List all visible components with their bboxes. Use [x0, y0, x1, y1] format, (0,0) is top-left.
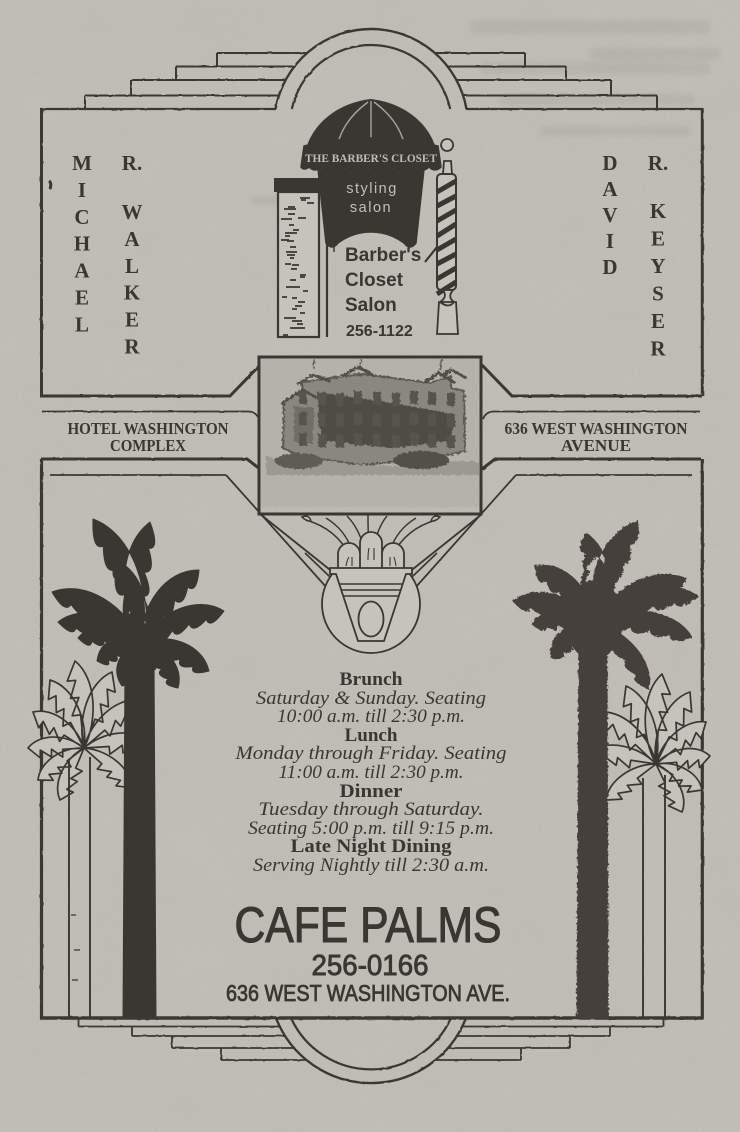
- svg-text:AVENUE: AVENUE: [561, 436, 631, 455]
- svg-text:CAFE PALMS: CAFE PALMS: [235, 897, 502, 953]
- svg-text:K: K: [650, 199, 667, 223]
- svg-text:Monday through Friday. Seating: Monday through Friday. Seating: [234, 744, 506, 764]
- svg-text:M: M: [72, 151, 92, 175]
- svg-text:I: I: [606, 229, 614, 253]
- svg-text:Brunch: Brunch: [340, 670, 404, 690]
- svg-text:W: W: [122, 200, 143, 224]
- svg-text:256-0166: 256-0166: [312, 950, 429, 982]
- svg-text:styling: styling: [346, 181, 398, 197]
- svg-text:11:00 a.m. till 2:30 p.m.: 11:00 a.m. till 2:30 p.m.: [279, 763, 464, 783]
- svg-text:H: H: [74, 232, 90, 256]
- svg-text:I: I: [78, 178, 86, 202]
- svg-text:Dinner: Dinner: [340, 782, 403, 802]
- svg-text:V: V: [602, 203, 617, 227]
- svg-text:E: E: [651, 227, 665, 251]
- svg-text:D: D: [602, 151, 617, 175]
- svg-text:Saturday & Sunday. Seating: Saturday & Sunday. Seating: [256, 689, 486, 709]
- svg-text:Y: Y: [650, 254, 665, 278]
- svg-text:Serving Nightly till 2:30 a.m.: Serving Nightly till 2:30 a.m.: [253, 856, 489, 876]
- svg-text:S: S: [652, 282, 664, 306]
- svg-text:E: E: [75, 286, 89, 310]
- svg-text:Tuesday through Saturday.: Tuesday through Saturday.: [259, 800, 484, 820]
- svg-text:C: C: [74, 205, 89, 229]
- svg-text:256-1122: 256-1122: [346, 323, 413, 340]
- svg-text:R.: R.: [122, 151, 142, 175]
- svg-text:Lunch: Lunch: [345, 726, 399, 746]
- svg-text:Seating 5:00 p.m. till 9:15 p.: Seating 5:00 p.m. till 9:15 p.m.: [248, 819, 494, 839]
- svg-text:K: K: [124, 281, 141, 305]
- svg-text:R: R: [124, 335, 140, 359]
- svg-text:L: L: [125, 254, 139, 278]
- svg-text:A: A: [124, 227, 140, 251]
- svg-text:Closet: Closet: [345, 270, 404, 291]
- svg-text:E: E: [651, 309, 665, 333]
- svg-text:R.: R.: [648, 151, 668, 175]
- svg-text:E: E: [125, 308, 139, 332]
- svg-text:636 WEST WASHINGTON AVE.: 636 WEST WASHINGTON AVE.: [226, 980, 510, 1006]
- svg-text:A: A: [602, 177, 618, 201]
- svg-text:Late Night Dining: Late Night Dining: [291, 837, 453, 857]
- svg-text:A: A: [74, 259, 90, 283]
- svg-text:D: D: [602, 255, 617, 279]
- svg-text:10:00 a.m. till 2:30 p.m.: 10:00 a.m. till 2:30 p.m.: [277, 707, 465, 727]
- svg-text:Salon: Salon: [345, 295, 397, 316]
- svg-text:COMPLEX: COMPLEX: [110, 436, 186, 455]
- svg-text:Barber's: Barber's: [345, 245, 421, 266]
- svg-text:THE BARBER'S CLOSET: THE BARBER'S CLOSET: [305, 151, 437, 165]
- svg-text:R: R: [650, 337, 666, 361]
- svg-text:salon: salon: [350, 200, 392, 216]
- svg-text:L: L: [75, 312, 89, 336]
